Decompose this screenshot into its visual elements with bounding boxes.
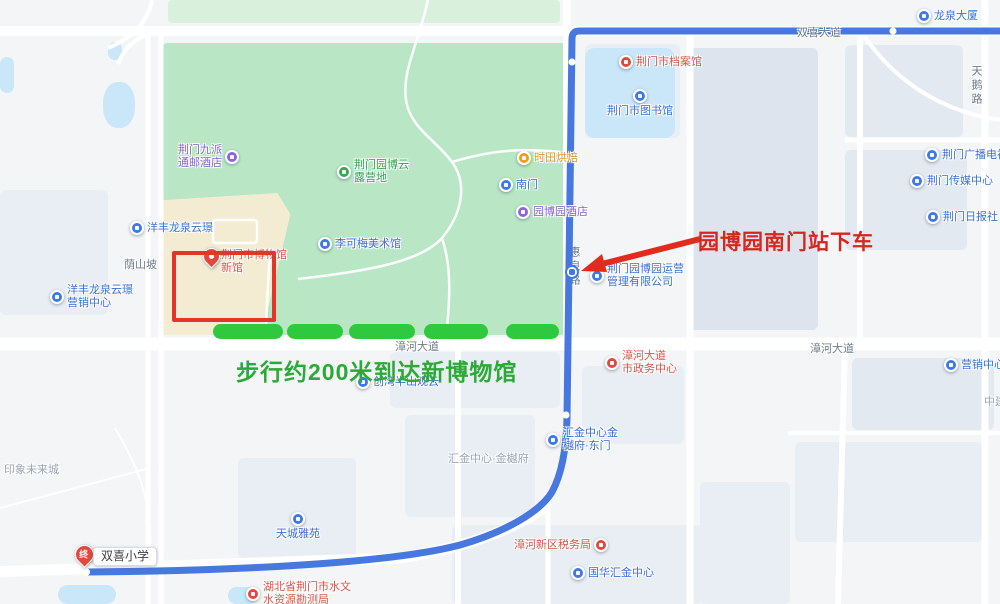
map-view[interactable]: 惠泉路 — [0, 0, 1000, 604]
alight-annotation-text: 园博园南门站下车 — [698, 226, 874, 256]
bus-stop-marker[interactable] — [565, 265, 579, 279]
walk-annotation-text: 步行约200米到达新博物馆 — [236, 353, 517, 387]
arrow-canvas — [0, 0, 1000, 604]
annotation-layer: 园博园南门站下车 步行约200米到达新博物馆 终 双喜小学 — [0, 0, 1000, 604]
destination-label: 双喜小学 — [93, 547, 157, 566]
alight-arrow-shaft — [598, 239, 700, 265]
alight-arrow-head — [581, 254, 607, 272]
